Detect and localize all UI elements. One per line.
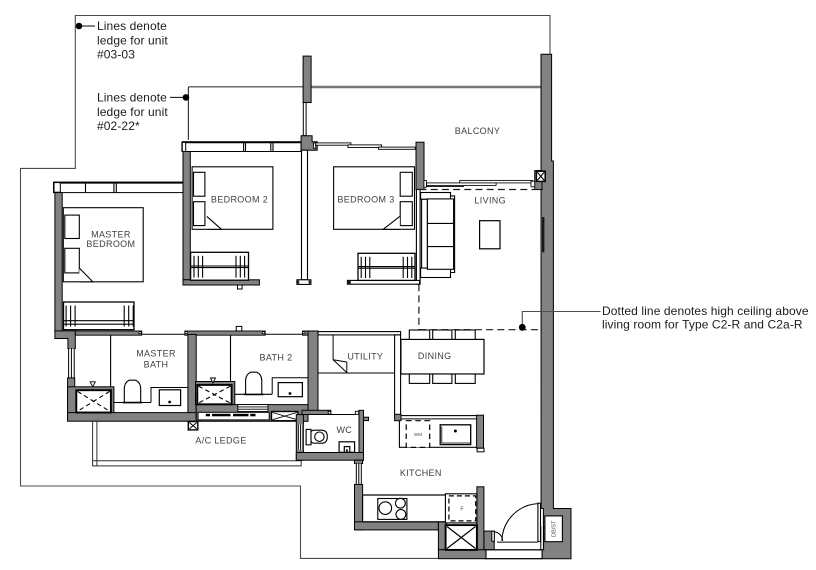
svg-text:KITCHEN: KITCHEN: [400, 468, 442, 478]
svg-text:DINING: DINING: [418, 351, 452, 361]
svg-text:BEDROOM 3: BEDROOM 3: [337, 195, 394, 205]
svg-text:BALCONY: BALCONY: [455, 126, 500, 136]
svg-text:MASTER: MASTER: [91, 229, 131, 239]
svg-text:A/C LEDGE: A/C LEDGE: [195, 435, 246, 445]
svg-text:ledge for unit: ledge for unit: [97, 33, 168, 47]
svg-text:living room for Type C2-R and: living room for Type C2-R and C2a-R: [602, 317, 803, 331]
svg-text:BATH 2: BATH 2: [260, 353, 293, 363]
svg-text:BEDROOM: BEDROOM: [86, 239, 135, 249]
svg-text:BATH: BATH: [144, 360, 169, 370]
svg-text:#02-22*: #02-22*: [97, 119, 140, 133]
svg-text:UTILITY: UTILITY: [347, 352, 383, 362]
svg-text:Lines denote: Lines denote: [97, 19, 167, 33]
svg-text:BEDROOM 2: BEDROOM 2: [211, 195, 268, 205]
svg-text:LIVING: LIVING: [474, 196, 506, 206]
svg-text:MASTER: MASTER: [136, 349, 176, 359]
svg-text:WC: WC: [336, 425, 352, 435]
svg-text:#03-03: #03-03: [97, 48, 135, 62]
svg-text:F: F: [460, 507, 463, 513]
svg-text:DB/ST: DB/ST: [552, 520, 558, 537]
svg-text:Lines denote: Lines denote: [97, 91, 167, 105]
svg-text:ledge for unit: ledge for unit: [97, 105, 168, 119]
svg-text:Dotted line denotes high ceili: Dotted line denotes high ceiling above: [602, 304, 809, 318]
svg-text:WM: WM: [414, 432, 422, 437]
